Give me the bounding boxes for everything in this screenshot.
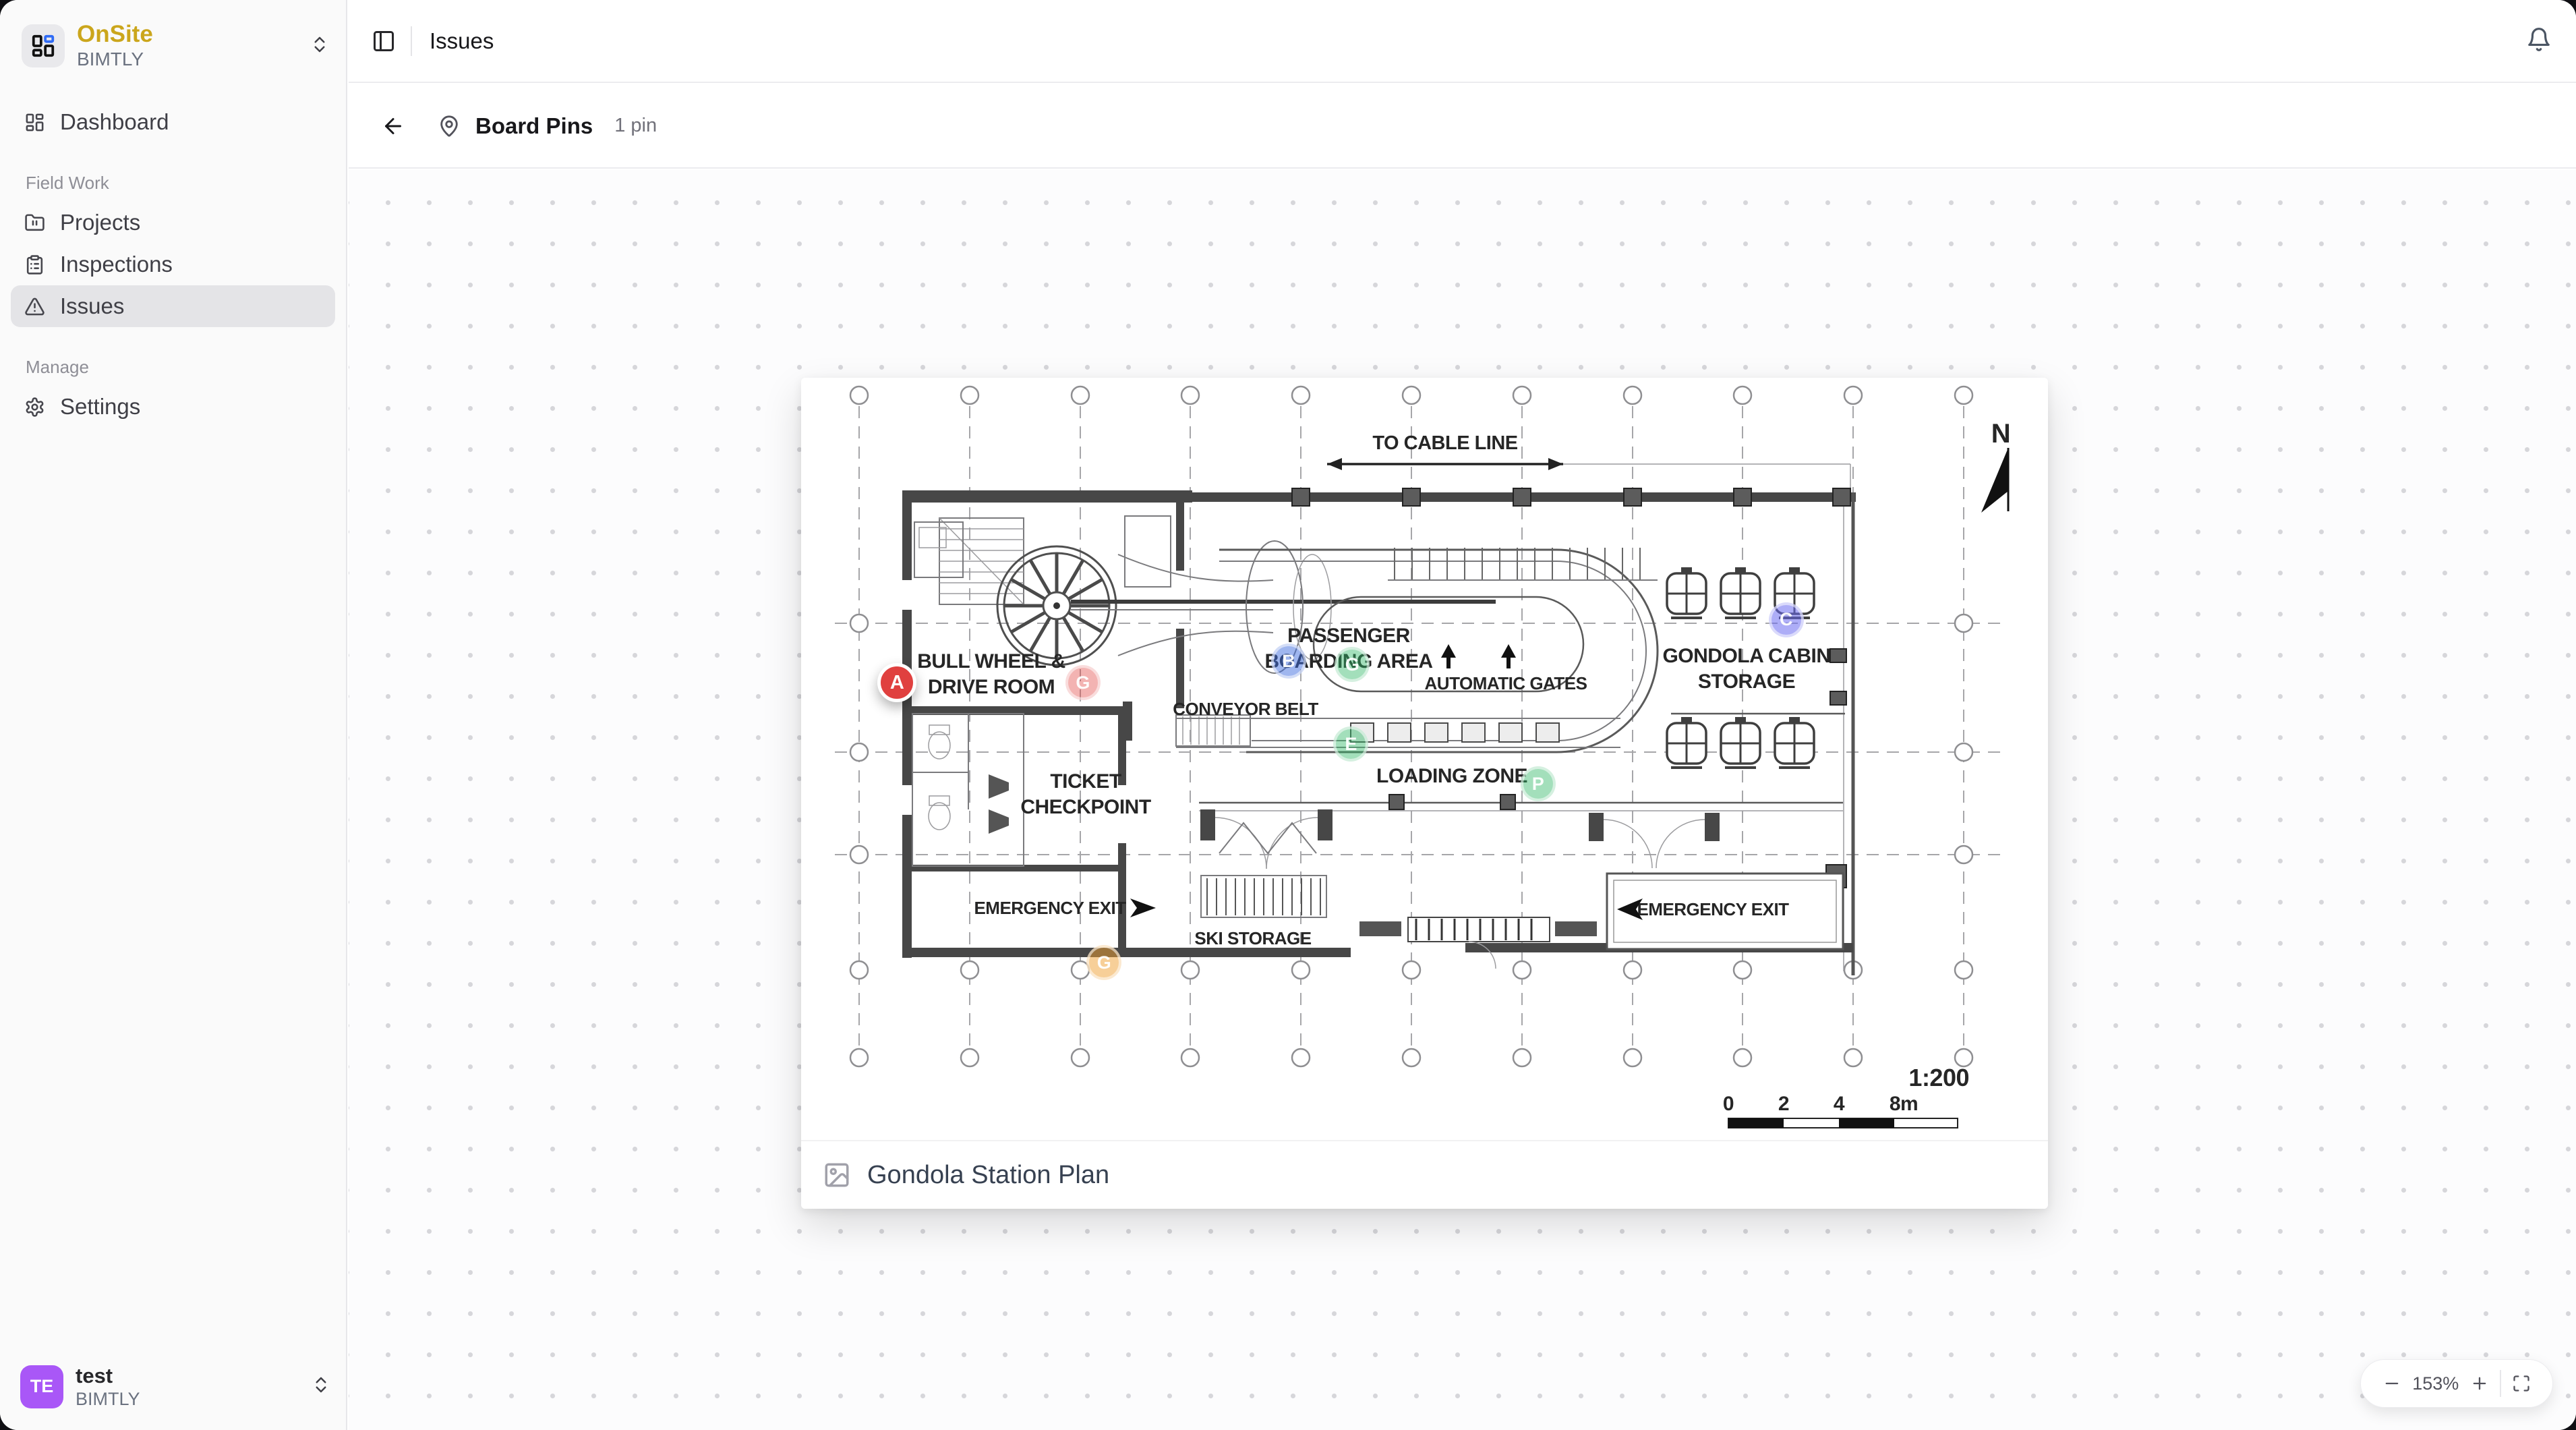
plan-label-loading-zone: LOADING ZONE (1376, 765, 1527, 787)
user-org: BIMTLY (76, 1388, 299, 1410)
plan-label-emergency-exit-left: EMERGENCY EXIT (974, 898, 1126, 918)
sidebar-item-settings[interactable]: Settings (11, 386, 335, 428)
top-bar: Issues (349, 0, 2576, 83)
divider (411, 26, 412, 56)
sidebar-item-label: Issues (60, 293, 124, 319)
back-button[interactable] (372, 105, 415, 148)
plan-label-emergency-exit-right: EMERGENCY EXIT (1637, 899, 1789, 919)
board-canvas[interactable]: TO CABLE LINE N (349, 170, 2576, 1430)
plan-label-passenger: PASSENGER (1287, 625, 1410, 647)
avatar: TE (20, 1365, 63, 1408)
zoom-out-button[interactable] (2378, 1370, 2405, 1397)
plan-loading-zone (1199, 795, 1843, 811)
clipboard-icon (24, 254, 45, 275)
plus-icon (2470, 1374, 2489, 1393)
plan-labels: BULL WHEEL & DRIVE ROOM PASSENGER BOARDI… (917, 625, 1830, 948)
panel-left-icon (372, 29, 396, 53)
plan-label-drive-room: DRIVE ROOM (928, 676, 1055, 698)
plan-label-conveyor-belt: CONVEYOR BELT (1173, 699, 1318, 719)
warning-triangle-icon (24, 296, 45, 317)
image-icon (823, 1161, 851, 1189)
sidebar: OnSite BIMTLY Dashboard Field Work Proje… (0, 0, 347, 1430)
plan-label-gondola-cabin: GONDOLA CABIN (1662, 645, 1830, 667)
board-title: Board Pins (475, 113, 593, 139)
plan-checkpoint-rooms (912, 714, 1024, 866)
board-pin[interactable]: C (1769, 602, 1804, 637)
user-menu[interactable]: TE test BIMTLY (20, 1364, 331, 1410)
app-window: OnSite BIMTLY Dashboard Field Work Proje… (0, 0, 2576, 1430)
board-pin[interactable]: G (1335, 647, 1370, 682)
svg-text:2: 2 (1778, 1093, 1789, 1115)
plan-label-checkpoint: CHECKPOINT (1020, 796, 1151, 818)
bell-icon (2526, 26, 2552, 52)
plan-cable-annotation: TO CABLE LINE (1327, 432, 1850, 491)
plan-label-ski-storage: SKI STORAGE (1194, 928, 1311, 948)
notifications-button[interactable] (2526, 26, 2552, 55)
sidebar-item-label: Dashboard (60, 109, 169, 135)
minus-icon (2382, 1374, 2401, 1393)
chevrons-up-down-icon (310, 34, 330, 58)
plan-cabin-storage (1667, 567, 1845, 768)
plan-label-storage: STORAGE (1698, 670, 1795, 693)
plan-label-ticket: TICKET (1050, 770, 1121, 793)
user-name: test (76, 1364, 299, 1388)
board-pin[interactable]: B (1271, 643, 1306, 679)
svg-text:4: 4 (1834, 1093, 1845, 1115)
plan-scale-ratio: 1:200 (1908, 1064, 1969, 1091)
dashboard-logo-icon (30, 33, 56, 59)
dashboard-grid-icon (24, 112, 45, 133)
plan-label-automatic-gates: AUTOMATIC GATES (1425, 673, 1587, 693)
sidebar-item-label: Settings (60, 394, 140, 420)
plan-title: Gondola Station Plan (867, 1161, 1109, 1190)
sidebar-item-label: Projects (60, 210, 140, 235)
chevrons-up-down-icon (311, 1375, 331, 1398)
plan-north-label: N (1991, 419, 2010, 449)
org-name: BIMTLY (77, 48, 297, 71)
sidebar-item-label: Inspections (60, 252, 173, 277)
board-pin[interactable]: A (877, 663, 916, 702)
org-switcher[interactable]: OnSite BIMTLY (20, 20, 331, 71)
arrow-left-icon (381, 114, 405, 138)
sidebar-item-issues[interactable]: Issues (11, 285, 335, 327)
sidebar-section-field-work: Field Work (26, 173, 335, 194)
board-pin[interactable]: G (1086, 945, 1121, 980)
plan-label-to-cable-line: TO CABLE LINE (1372, 432, 1517, 454)
sidebar-item-inspections[interactable]: Inspections (11, 244, 335, 285)
plan-card: TO CABLE LINE N (801, 378, 2048, 1209)
plan-ski-rack (1201, 876, 1326, 917)
zoom-controls: 153% (2360, 1359, 2553, 1408)
svg-text:0: 0 (1723, 1093, 1734, 1115)
folder-icon (24, 212, 45, 233)
plan-doors (1200, 809, 1720, 869)
sidebar-toggle-button[interactable] (362, 20, 405, 63)
plan-conveyor (1176, 715, 1620, 747)
fullscreen-button[interactable] (2508, 1370, 2535, 1397)
plan-caption-bar: Gondola Station Plan (801, 1140, 2048, 1209)
gear-icon (24, 397, 45, 418)
map-pin-icon (438, 115, 461, 138)
plan-label-bull-wheel: BULL WHEEL & (917, 650, 1065, 673)
board-pin[interactable]: E (1333, 726, 1368, 762)
board-pin[interactable]: P (1521, 766, 1556, 801)
sidebar-section-manage: Manage (26, 357, 335, 378)
board-pin[interactable]: G (1065, 665, 1101, 700)
sidebar-item-projects[interactable]: Projects (11, 202, 335, 244)
maximize-icon (2512, 1374, 2531, 1393)
divider (2500, 1370, 2501, 1397)
sidebar-item-dashboard[interactable]: Dashboard (11, 101, 335, 143)
svg-text:8m: 8m (1890, 1093, 1918, 1115)
zoom-in-button[interactable] (2466, 1370, 2493, 1397)
north-arrow-icon: N (1981, 419, 2010, 513)
pin-count-badge: 1 pin (614, 115, 657, 137)
board-header: Board Pins 1 pin (349, 84, 2576, 169)
floor-plan-image[interactable]: TO CABLE LINE N (801, 378, 2048, 1140)
app-name: OnSite (77, 22, 297, 48)
page-title: Issues (430, 28, 494, 54)
app-logo (22, 24, 65, 67)
plan-scale-bar: 1:200 0 2 4 8m (1723, 1064, 1969, 1128)
zoom-level: 153% (2412, 1373, 2459, 1394)
sidebar-nav: Dashboard Field Work Projects Inspection… (0, 101, 346, 428)
